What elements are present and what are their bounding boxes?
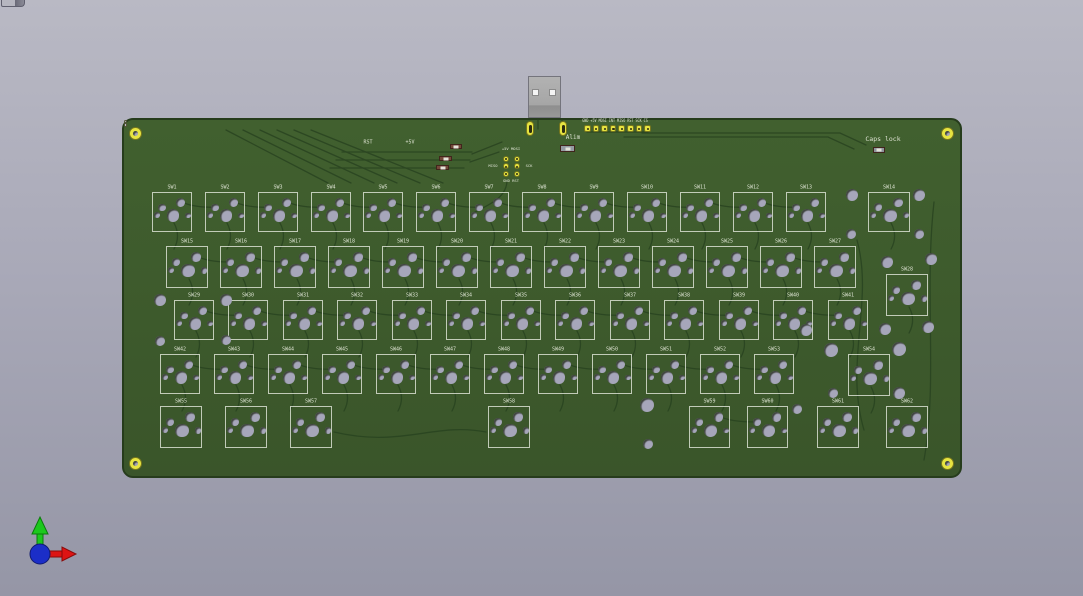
switch-hole [343, 264, 356, 277]
switch-hole [211, 204, 219, 212]
switch-hole [854, 366, 862, 374]
switch-footprint [886, 274, 928, 316]
switch-hole [425, 321, 431, 327]
switch-hole [686, 204, 694, 212]
header-pad [584, 125, 591, 132]
3d-viewport[interactable]: SW1SW2SW3SW4SW5SW6SW7SW8SW9SW10SW11SW12S… [0, 0, 1083, 596]
switch-hole [753, 418, 761, 426]
capslock-led-marking [877, 149, 882, 152]
switch-footprint [886, 406, 928, 448]
switch-hole [557, 320, 563, 326]
switch-label: SW2 [220, 186, 229, 191]
switch-hole [261, 321, 267, 327]
switch-hole [850, 375, 856, 381]
switch-hole [388, 258, 396, 266]
switch-hole [756, 374, 762, 380]
switch-footprint [814, 246, 856, 288]
switch-hole [289, 264, 302, 277]
switch-hole [888, 295, 894, 301]
switch-hole [598, 198, 607, 207]
switch-label: SW60 [761, 400, 773, 405]
switch-hole [384, 267, 390, 273]
switch-hole [397, 264, 410, 277]
switch-hole [762, 267, 768, 273]
switch-hole [580, 204, 588, 212]
switch-hole [508, 360, 517, 369]
switch-hole [612, 320, 618, 326]
switch-hole [451, 264, 464, 277]
switch-footprint [484, 354, 524, 394]
switch-hole [270, 374, 276, 380]
switch-hole [888, 427, 894, 433]
switch-hole [289, 312, 297, 320]
switch-hole [842, 412, 852, 422]
switch-hole [445, 371, 458, 384]
switch-hole [440, 198, 449, 207]
switch-label: SW53 [768, 348, 780, 353]
stabilizer-hole [221, 335, 231, 345]
switch-hole [598, 366, 606, 374]
switch-hole [492, 267, 498, 273]
switch-hole [185, 412, 195, 422]
switch-hole [454, 360, 463, 369]
switch-hole [461, 252, 471, 262]
header-pad [601, 125, 608, 132]
switch-footprint [416, 192, 456, 232]
switch-hole [398, 312, 406, 320]
switch-hole [524, 212, 530, 218]
switch-hole [442, 258, 450, 266]
switch-hole [721, 320, 727, 326]
switch-footprint [592, 354, 632, 394]
stabilizer-hole [913, 189, 925, 201]
switch-hole [222, 267, 228, 273]
switch-hole [285, 320, 291, 326]
switch-hole [893, 198, 903, 208]
switch-hole [363, 267, 369, 273]
isp-pad-hole [505, 173, 507, 175]
axis-origin-sphere [30, 544, 50, 564]
switch-label: SW52 [714, 348, 726, 353]
switch-hole [874, 203, 882, 211]
switch-hole [667, 264, 680, 277]
switch-hole [832, 424, 845, 437]
silk-label: Alim [566, 135, 580, 141]
switch-label: SW27 [829, 240, 841, 245]
switch-hole [274, 366, 282, 374]
switch-footprint [488, 406, 530, 448]
switch-label: SW46 [390, 348, 402, 353]
switch-hole [494, 418, 502, 426]
switch-hole [741, 267, 747, 273]
switch-hole [436, 366, 444, 374]
switch-hole [418, 212, 424, 218]
switch-hole [757, 198, 766, 207]
switch-footprint [555, 300, 595, 340]
switch-label: SW59 [703, 400, 715, 405]
switch-hole [792, 204, 800, 212]
switch-hole [903, 212, 909, 218]
switch-hole [220, 366, 228, 374]
stabilizer-hole [846, 189, 858, 201]
switch-label: SW48 [498, 348, 510, 353]
switch-hole [625, 375, 631, 381]
usb-connector [528, 76, 561, 118]
switch-hole [432, 374, 438, 380]
switch-footprint [160, 406, 202, 448]
switch-hole [546, 198, 555, 207]
switch-hole [352, 317, 365, 330]
switch-footprint [328, 246, 370, 288]
switch-label: SW43 [228, 348, 240, 353]
switch-label: SW1 [167, 186, 176, 191]
switch-footprint [446, 300, 486, 340]
switch-footprint [274, 246, 316, 288]
stabilizer-hole [881, 256, 893, 268]
switch-hole [490, 427, 496, 433]
switch-footprint [610, 300, 650, 340]
stabilizer-hole [922, 321, 934, 333]
header-pad [627, 125, 634, 132]
switch-hole [892, 286, 900, 294]
switch-hole [797, 306, 806, 315]
switch-footprint [376, 354, 416, 394]
switch-hole [479, 321, 485, 327]
switch-hole [911, 280, 921, 290]
switch-hole [658, 258, 666, 266]
mounting-hole [129, 127, 142, 140]
switch-hole [226, 258, 234, 266]
switch-footprint [225, 406, 267, 448]
switch-footprint [160, 354, 200, 394]
header-pad-hole [595, 128, 597, 130]
switch-footprint [700, 354, 740, 394]
switch-footprint [322, 354, 362, 394]
switch-hole [166, 366, 174, 374]
switch-hole [613, 264, 626, 277]
switch-hole [749, 427, 755, 433]
switch-label: SW28 [901, 268, 913, 273]
switch-footprint [733, 192, 773, 232]
switch-hole [490, 366, 498, 374]
switch-label: SW45 [336, 348, 348, 353]
switch-hole [172, 258, 180, 266]
header-pad-hole [638, 128, 640, 130]
switch-hole [335, 198, 344, 207]
switch-label: SW54 [863, 348, 875, 353]
switch-hole [370, 321, 376, 327]
switch-hole [695, 209, 708, 222]
switch-hole [785, 252, 795, 262]
switch-footprint [627, 192, 667, 232]
switch-hole [305, 424, 318, 437]
switch-label: SW13 [800, 186, 812, 191]
switch-hole [534, 321, 540, 327]
switch-hole [353, 252, 363, 262]
silk-label: +5V [405, 141, 414, 146]
switch-label: SW57 [305, 400, 317, 405]
switch-hole [616, 360, 625, 369]
switch-label: SW32 [351, 294, 363, 299]
switch-hole [503, 320, 509, 326]
switch-hole [555, 213, 561, 219]
switch-hole [324, 374, 330, 380]
switch-hole [417, 267, 423, 273]
switch-hole [553, 371, 566, 384]
switch-hole [679, 375, 685, 381]
smd-component-3 [436, 165, 449, 170]
switch-label: SW34 [460, 294, 472, 299]
switch-hole [315, 412, 325, 422]
switch-footprint [747, 406, 788, 448]
switch-footprint [268, 354, 308, 394]
switch-hole [843, 317, 856, 330]
switch-hole [579, 306, 588, 315]
switch-label: SW6 [431, 186, 440, 191]
switch-hole [346, 360, 355, 369]
header-pin-labels: GND +5V MOSI INT MISO RST SCK CS [582, 119, 648, 123]
switch-hole [820, 258, 828, 266]
switch-hole [396, 213, 402, 219]
stabilizer-hole [643, 439, 653, 449]
switch-hole [766, 258, 774, 266]
smd-component-2-marking [443, 157, 448, 160]
switch-hole [830, 320, 836, 326]
switch-hole [201, 267, 207, 273]
switch-hole [540, 374, 546, 380]
switch-footprint [430, 354, 470, 394]
switch-hole [493, 198, 502, 207]
switch-hole [775, 264, 788, 277]
switch-hole [652, 366, 660, 374]
switch-hole [772, 412, 781, 421]
switch-label: SW26 [775, 240, 787, 245]
switch-footprint [469, 192, 509, 232]
switch-label: SW36 [569, 294, 581, 299]
stabilizer-hole [800, 324, 812, 336]
switch-hole [344, 213, 350, 219]
switch-label: SW38 [678, 294, 690, 299]
capslock-led [873, 147, 885, 153]
switch-hole [355, 375, 361, 381]
switch-footprint [382, 246, 424, 288]
switch-label: SW50 [606, 348, 618, 353]
switch-hole [316, 321, 322, 327]
switch-label: SW41 [842, 294, 854, 299]
switch-hole [229, 371, 242, 384]
switch-hole [569, 252, 579, 262]
switch-hole [337, 371, 350, 384]
switch-hole [400, 360, 409, 369]
switch-hole [525, 267, 531, 273]
switch-hole [325, 427, 331, 433]
switch-label: SW10 [641, 186, 653, 191]
switch-hole [452, 312, 460, 320]
switch-hole [733, 375, 739, 381]
switch-hole [461, 317, 474, 330]
switch-hole [670, 312, 678, 320]
switch-hole [167, 209, 180, 222]
switch-footprint [490, 246, 532, 288]
isp-pad [514, 171, 520, 177]
switch-footprint [689, 406, 730, 448]
switch-label: SW33 [406, 294, 418, 299]
isp-pad-hole [505, 166, 507, 168]
switch-hole [307, 306, 316, 315]
switch-hole [339, 320, 345, 326]
switch-hole [739, 204, 747, 212]
switch-hole [162, 374, 168, 380]
switch-hole [723, 428, 729, 434]
isp-pad-hole [516, 173, 518, 175]
switch-hole [503, 424, 516, 437]
switch-hole [162, 427, 168, 433]
stabilizer-hole [893, 387, 905, 399]
switch-hole [431, 209, 444, 222]
switch-hole [240, 424, 253, 437]
switch-footprint [283, 300, 323, 340]
switch-hole [394, 320, 400, 326]
switch-footprint [754, 354, 794, 394]
switch-hole [516, 317, 529, 330]
switch-hole [819, 427, 825, 433]
switch-hole [788, 212, 794, 218]
stabilizer-hole [846, 229, 856, 239]
switch-hole [291, 213, 297, 219]
switch-footprint [817, 406, 859, 448]
switch-hole [810, 198, 819, 207]
switch-footprint [522, 192, 562, 232]
switch-footprint [501, 300, 541, 340]
switch-hole [708, 267, 714, 273]
switch-hole [571, 375, 577, 381]
switch-hole [513, 412, 523, 422]
switch-hole [589, 209, 602, 222]
switch-label: SW17 [289, 240, 301, 245]
switch-hole [189, 317, 202, 330]
switch-hole [823, 418, 831, 426]
switch-footprint [258, 192, 298, 232]
switch-label: SW5 [378, 186, 387, 191]
switch-hole [911, 412, 921, 422]
switch-hole [677, 252, 687, 262]
switch-hole [607, 371, 620, 384]
switch-hole [604, 258, 612, 266]
stabilizer-hole [914, 229, 924, 239]
stabilizer-hole [925, 253, 937, 265]
switch-label: SW29 [188, 294, 200, 299]
switch-label: SW35 [515, 294, 527, 299]
switch-hole [184, 360, 193, 369]
silk-label: RST [363, 141, 372, 146]
switch-hole [276, 267, 282, 273]
smd-component-1-marking [454, 145, 459, 148]
switch-footprint [680, 192, 720, 232]
switch-footprint [574, 192, 614, 232]
switch-hole [176, 198, 185, 207]
switch-hole [901, 292, 914, 305]
switch-footprint [436, 246, 478, 288]
switch-label: SW62 [901, 400, 913, 405]
switch-footprint [828, 300, 868, 340]
switch-hole [679, 317, 692, 330]
switch-footprint [290, 406, 332, 448]
switch-hole [921, 427, 927, 433]
switch-footprint [538, 354, 578, 394]
switch-hole [714, 412, 723, 421]
switch-footprint [166, 246, 208, 288]
switch-hole [369, 204, 377, 212]
switch-hole [471, 267, 477, 273]
switch-hole [273, 209, 286, 222]
header-pad [618, 125, 625, 132]
switch-hole [409, 375, 415, 381]
switch-footprint [760, 246, 802, 288]
switch-hole [546, 267, 552, 273]
switch-hole [378, 209, 391, 222]
switch-hole [695, 418, 703, 426]
switch-hole [748, 209, 761, 222]
switch-hole [185, 213, 191, 219]
switch-hole [245, 252, 255, 262]
switch-hole [507, 312, 515, 320]
switch-hole [643, 321, 649, 327]
switch-hole [863, 372, 876, 385]
switch-footprint [311, 192, 351, 232]
axis-gizmo [24, 512, 94, 576]
switch-hole [883, 375, 889, 381]
switch-hole [207, 212, 213, 218]
isp-pad-hole [516, 158, 518, 160]
switch-footprint [205, 192, 245, 232]
switch-label: SW22 [559, 240, 571, 245]
switch-hole [330, 267, 336, 273]
switch-hole [704, 424, 717, 437]
switch-hole [779, 312, 787, 320]
switch-hole [407, 317, 420, 330]
switch-hole [801, 209, 814, 222]
switch-hole [849, 267, 855, 273]
switch-hole [296, 418, 304, 426]
header-pad-hole [621, 128, 623, 130]
switch-footprint [652, 246, 694, 288]
switch-label: SW31 [297, 294, 309, 299]
isp-label-right: SCK [526, 164, 533, 168]
switch-hole [570, 317, 583, 330]
switch-hole [775, 320, 781, 326]
switch-hole [517, 375, 523, 381]
switch-hole [343, 312, 351, 320]
switch-hole [158, 204, 166, 212]
switch-hole [515, 252, 525, 262]
switch-hole [697, 321, 703, 327]
switch-hole [298, 317, 311, 330]
switch-hole [873, 360, 883, 370]
usb-shield-slot [529, 125, 532, 133]
usb-contact-hole [549, 89, 556, 96]
switch-footprint [337, 300, 377, 340]
stabilizer-hole [154, 294, 166, 306]
switch-hole [901, 424, 914, 437]
switch-label: SW3 [273, 186, 282, 191]
switch-hole [198, 306, 207, 315]
header-pad-hole [604, 128, 606, 130]
switch-hole [227, 427, 233, 433]
isp-pad-hole [516, 166, 518, 168]
switch-footprint [646, 354, 686, 394]
switch-hole [537, 209, 550, 222]
stabilizer-hole [640, 398, 654, 412]
